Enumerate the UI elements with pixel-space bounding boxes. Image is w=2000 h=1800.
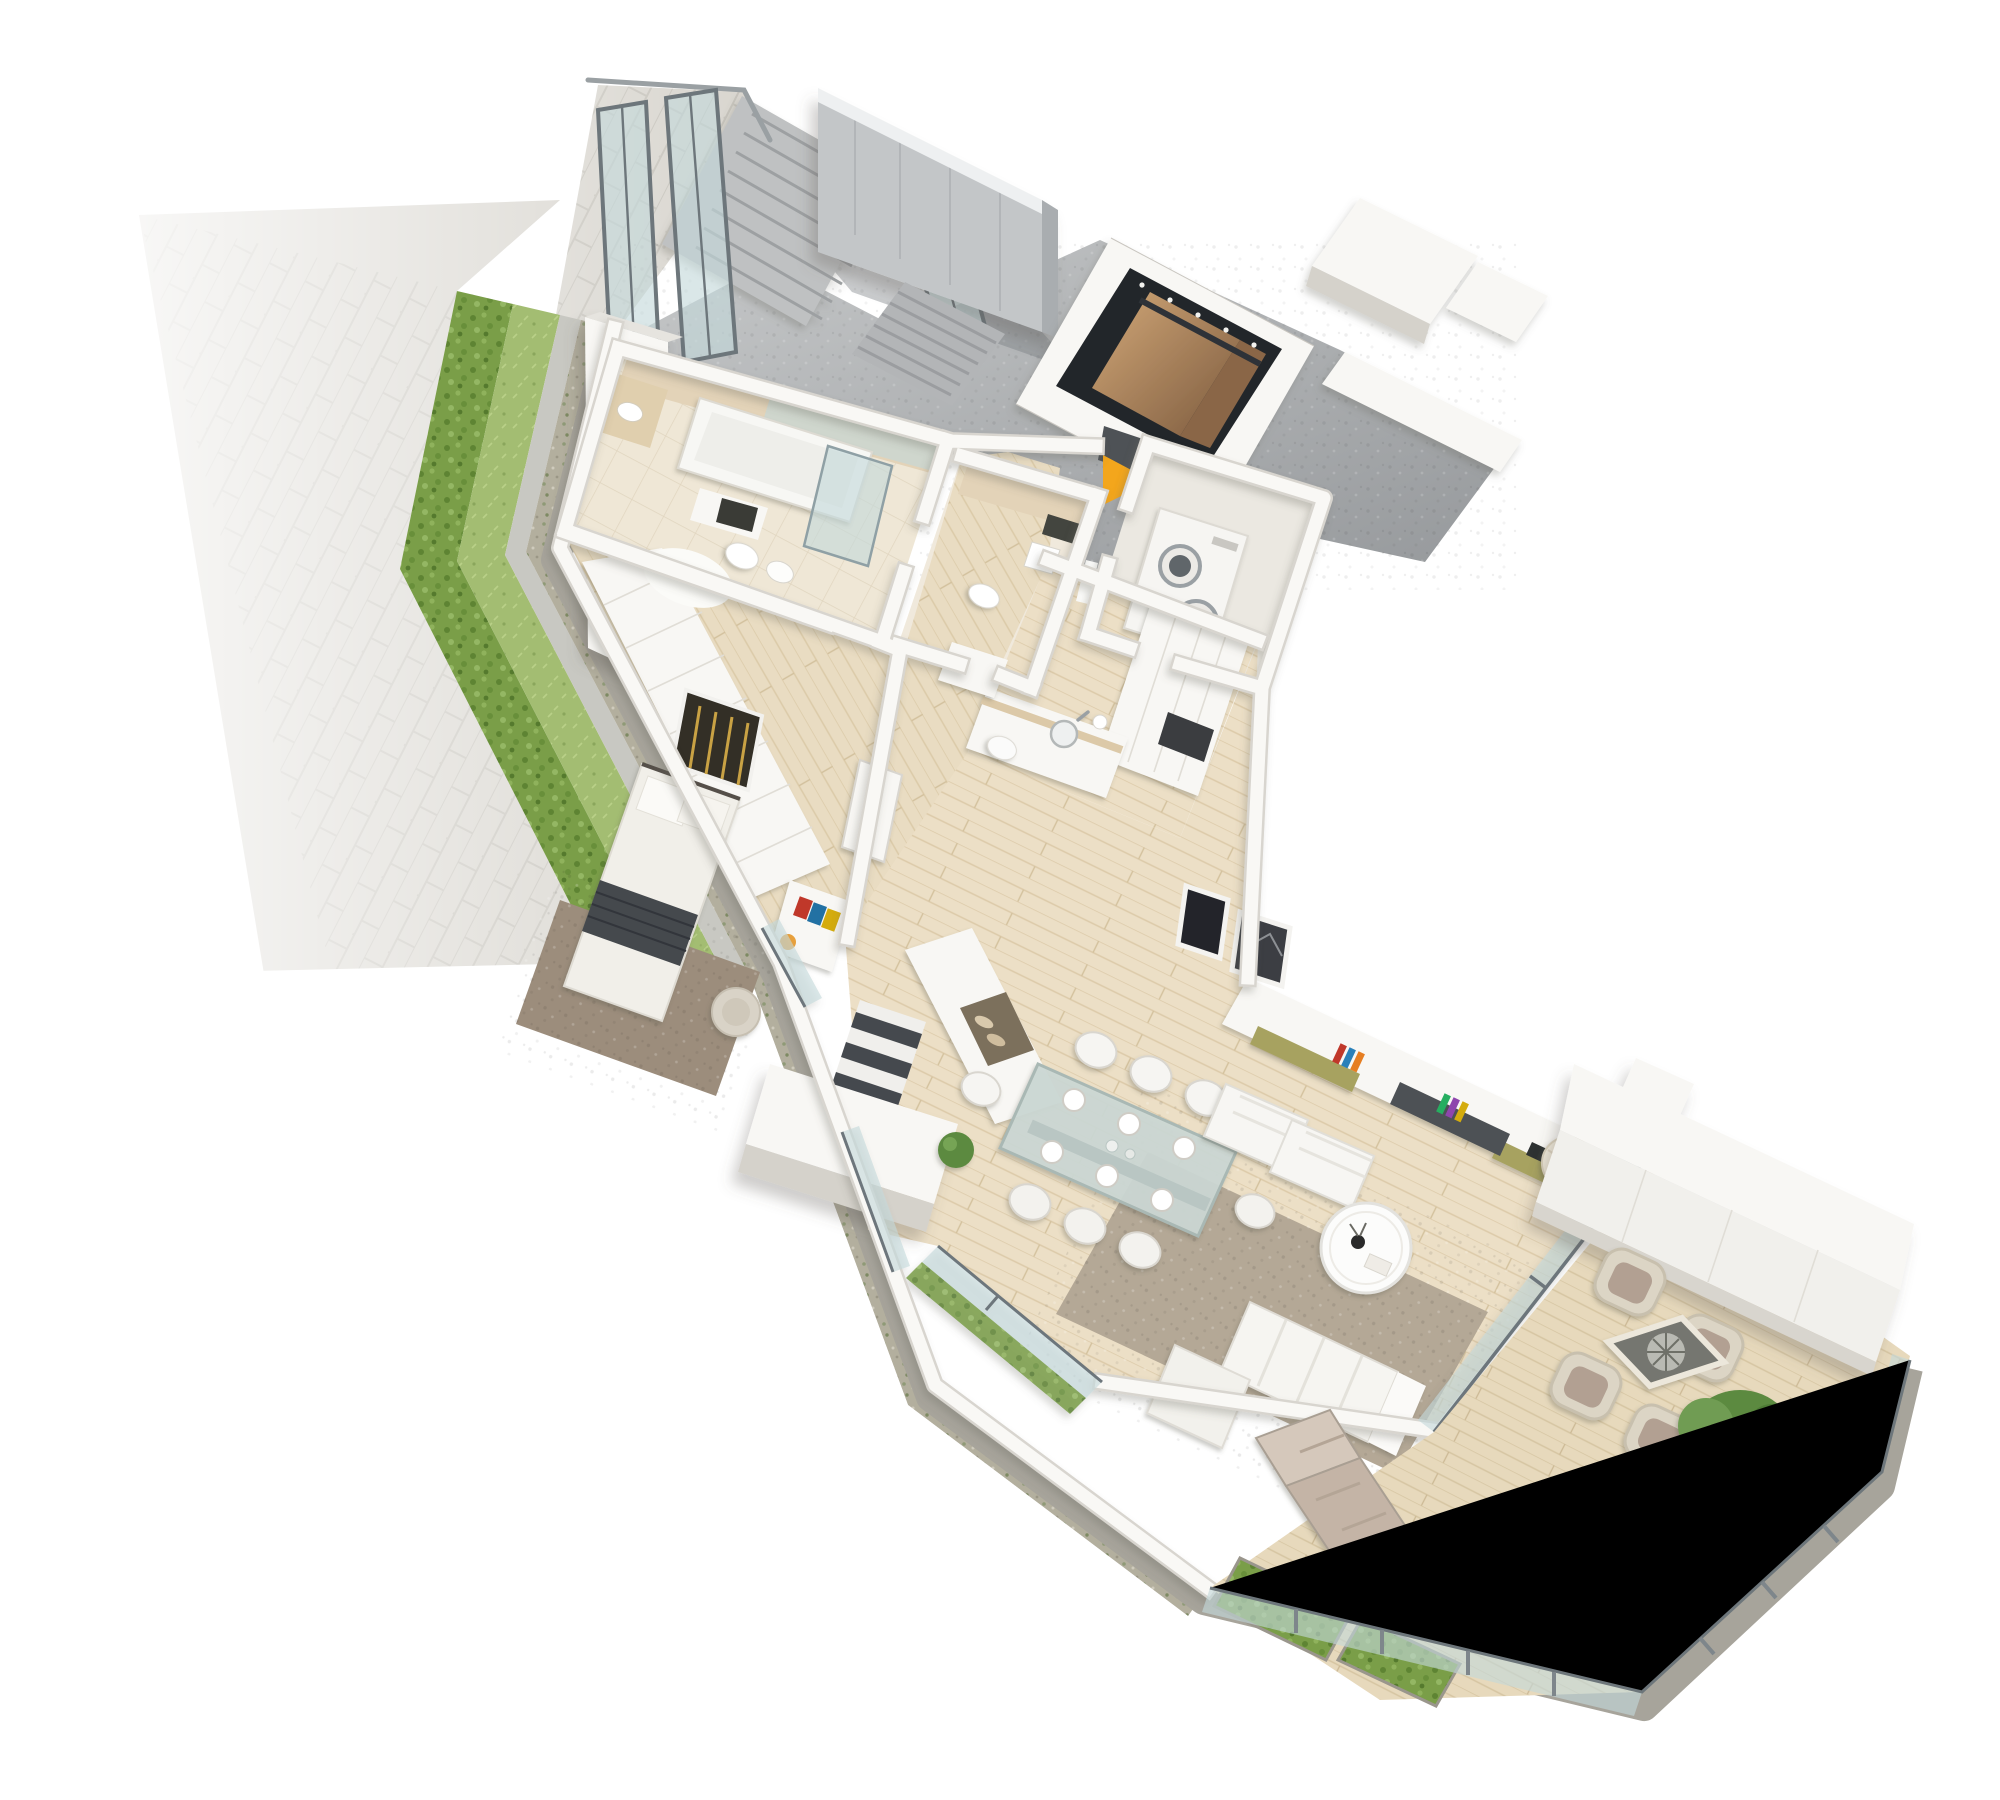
coffee-table	[1321, 1203, 1411, 1293]
potted-plant	[938, 1132, 974, 1168]
vase	[1351, 1235, 1365, 1249]
kitchen-sink	[1051, 721, 1077, 747]
paper-roll	[1093, 715, 1107, 729]
floorplan-rendering: 3D isometric cutaway floor-plan renderin…	[0, 0, 2000, 1800]
